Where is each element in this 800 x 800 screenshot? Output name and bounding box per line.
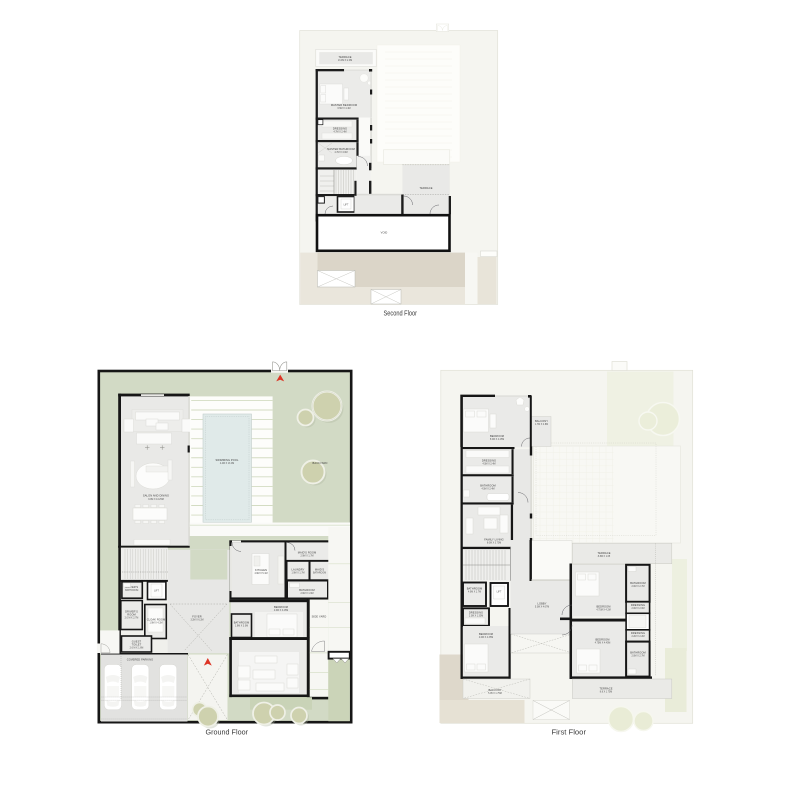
svg-text:BATHROOM: BATHROOM	[234, 621, 250, 625]
svg-text:SIDE YARD: SIDE YARD	[312, 615, 327, 619]
svg-text:4.7M X 2.4M: 4.7M X 2.4M	[333, 132, 346, 134]
svg-text:2.9M X 1.7M: 2.9M X 1.7M	[300, 556, 313, 558]
svg-text:TOILET: TOILET	[132, 642, 142, 646]
svg-text:BEDROOM: BEDROOM	[274, 605, 288, 609]
svg-text:FAMILY LIVING: FAMILY LIVING	[484, 538, 504, 542]
svg-text:ROOM: ROOM	[127, 613, 135, 617]
svg-text:4.5M X 2.4M: 4.5M X 2.4M	[481, 489, 494, 491]
svg-text:2.6M X 1.6M: 2.6M X 1.6M	[300, 593, 313, 595]
svg-text:2.3M X 1.35M: 2.3M X 1.35M	[469, 616, 483, 618]
svg-text:BACKYARD: BACKYARD	[313, 461, 328, 465]
svg-text:LAUNDRY: LAUNDRY	[291, 568, 304, 572]
svg-text:FOYER: FOYER	[192, 615, 201, 619]
svg-text:1.9M X 1.7M: 1.9M X 1.7M	[291, 573, 304, 575]
svg-text:SALON AND DINING: SALON AND DINING	[143, 494, 169, 498]
svg-text:BATHROOM: BATHROOM	[467, 587, 483, 591]
svg-text:BATHROOM: BATHROOM	[480, 484, 496, 488]
svg-text:2.2M X 2.2M: 2.2M X 2.2M	[631, 636, 644, 638]
svg-text:4.5M X 2.4M: 4.5M X 2.4M	[482, 464, 495, 466]
svg-text:5.0M X 4.45M: 5.0M X 4.45M	[490, 439, 504, 441]
svg-text:9.0M X 13.25M: 9.0M X 13.25M	[148, 499, 164, 501]
svg-text:TERRACE: TERRACE	[599, 686, 612, 690]
svg-text:BATHROOM: BATHROOM	[630, 581, 646, 585]
svg-text:DRESSING: DRESSING	[631, 603, 645, 607]
svg-text:4.0M X 1.7M: 4.0M X 1.7M	[468, 592, 481, 594]
svg-text:2.0M X 2.0M: 2.0M X 2.0M	[631, 608, 644, 610]
svg-text:5.3M X 4.67M: 5.3M X 4.67M	[535, 607, 549, 609]
svg-text:TERRACE: TERRACE	[338, 55, 351, 59]
svg-text:DRESSING: DRESSING	[482, 459, 496, 463]
svg-text:4.0M X 4.35M: 4.0M X 4.35M	[479, 637, 493, 639]
svg-text:LOBBY: LOBBY	[537, 602, 546, 606]
svg-text:2.0M X 2.7M: 2.0M X 2.7M	[631, 656, 644, 658]
svg-text:BALCONY: BALCONY	[488, 688, 501, 692]
svg-text:MAID'S: MAID'S	[315, 568, 324, 572]
svg-text:TERRACE: TERRACE	[419, 186, 432, 190]
svg-text:8.8M X 1.65: 8.8M X 1.65	[598, 556, 611, 558]
svg-text:Second Floor: Second Floor	[384, 309, 418, 318]
svg-text:MAID'S ROOM: MAID'S ROOM	[298, 551, 317, 555]
svg-text:MASTER BEDROOM: MASTER BEDROOM	[331, 103, 357, 107]
svg-text:Ground Floor: Ground Floor	[206, 728, 249, 737]
svg-text:SWIMMING POOL: SWIMMING POOL	[215, 458, 239, 462]
svg-text:5.95 X 1.75M: 5.95 X 1.75M	[488, 693, 502, 695]
svg-text:DRESSING: DRESSING	[333, 127, 347, 131]
svg-text:6.5M X 4.4M: 6.5M X 4.4M	[337, 108, 350, 110]
svg-text:8.8 X 1.75M: 8.8 X 1.75M	[600, 692, 612, 694]
svg-text:First Floor: First Floor	[552, 728, 587, 737]
svg-text:2.0M X 2.7M: 2.0M X 2.7M	[631, 586, 644, 588]
svg-text:CLOAK ROOM: CLOAK ROOM	[147, 618, 166, 622]
svg-text:4.6M X 3.45M: 4.6M X 3.45M	[274, 610, 288, 612]
svg-text:BATHROOM: BATHROOM	[313, 572, 326, 575]
svg-text:1.7M X 4.8M: 1.7M X 4.8M	[535, 424, 548, 426]
svg-text:DRESSING: DRESSING	[631, 631, 645, 635]
svg-text:BATHROOM: BATHROOM	[630, 651, 646, 655]
svg-text:LIFT: LIFT	[154, 591, 159, 593]
svg-text:BALCONY: BALCONY	[535, 419, 548, 423]
svg-text:4.75M X 4.45M: 4.75M X 4.45M	[595, 643, 611, 645]
svg-text:VOID: VOID	[381, 231, 388, 235]
svg-text:6.0M X 3.75M: 6.0M X 3.75M	[487, 543, 501, 545]
svg-text:2.0 M X 2.7M: 2.0 M X 2.7M	[125, 618, 139, 620]
svg-text:4.4M X 13.0M: 4.4M X 13.0M	[220, 463, 234, 465]
svg-text:BEDROOM: BEDROOM	[490, 434, 504, 438]
svg-text:MASTER BATHROOM: MASTER BATHROOM	[327, 147, 355, 151]
svg-text:1.9M X 4.2M: 1.9M X 4.2M	[149, 623, 162, 625]
svg-text:4.75M X 4.2M: 4.75M X 4.2M	[596, 610, 610, 612]
svg-text:COVERED PARKING: COVERED PARKING	[127, 658, 154, 662]
svg-text:BATHROOM: BATHROOM	[299, 588, 315, 592]
svg-text:BEDROOM: BEDROOM	[596, 604, 610, 608]
svg-text:BATHROOM: BATHROOM	[125, 589, 138, 592]
svg-text:3.2M X 6.2M: 3.2M X 6.2M	[190, 620, 203, 622]
svg-text:LIFT: LIFT	[497, 592, 502, 594]
svg-text:2.6 M X 1.6M: 2.6 M X 1.6M	[130, 648, 144, 650]
svg-text:4.7M X 3.0M: 4.7M X 3.0M	[334, 152, 347, 154]
svg-text:4.9M X 5.1M: 4.9M X 5.1M	[254, 573, 267, 575]
svg-text:1.9M X 3.0M: 1.9M X 3.0M	[235, 626, 248, 628]
svg-text:TERRACE: TERRACE	[597, 551, 610, 555]
svg-text:DRESSING: DRESSING	[469, 611, 483, 615]
svg-text:BEDROOM: BEDROOM	[479, 632, 493, 636]
svg-text:LIFT: LIFT	[344, 205, 349, 207]
svg-text:BEDROOM: BEDROOM	[595, 637, 609, 641]
svg-text:KITCHEN: KITCHEN	[255, 568, 267, 572]
svg-text:13.0M X 2.9M: 13.0M X 2.9M	[338, 60, 352, 62]
